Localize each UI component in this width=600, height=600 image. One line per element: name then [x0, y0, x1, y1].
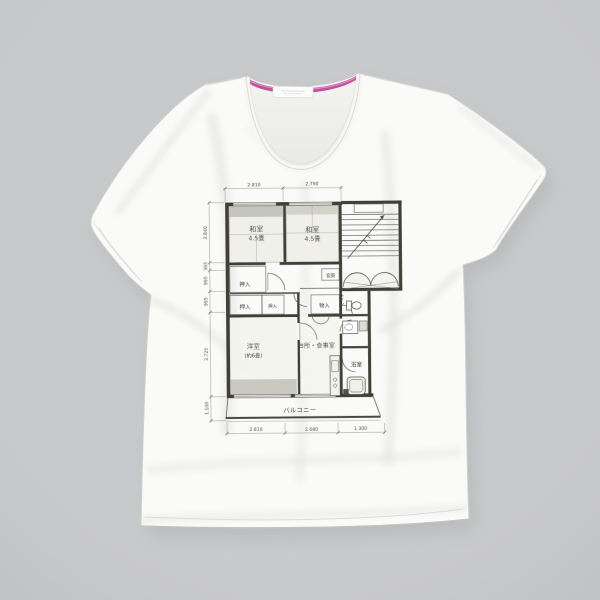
label-kitchen-dining: 台所・食事室 [298, 342, 335, 350]
label-waroom-left-size: 4.5畳 [248, 235, 264, 242]
dim-left-3: 995 [203, 297, 209, 306]
dim-left-1: 365 [203, 262, 209, 271]
label-closet-lower-left: 押入 [239, 303, 251, 311]
tshirt-product-photo: 和室 4.5畳 和室 4.5畳 押入 押入 押入 物入 玄関 トイレ 洋室 (約… [0, 0, 600, 600]
dim-left-4: 3.725 [204, 348, 210, 361]
dim-top-0: 2.810 [247, 182, 260, 188]
dim-bottom-2: 1.300 [354, 426, 367, 432]
label-toilet: トイレ [340, 294, 346, 305]
label-western-room-name: 洋室 [247, 341, 261, 350]
label-storage: 物入 [319, 301, 329, 309]
dim-top-1: 2.790 [305, 181, 318, 187]
dim-bottom-1: 2.680 [305, 427, 318, 433]
washing-machine-icon [359, 321, 367, 331]
label-waroom-right-name: 和室 [305, 225, 319, 234]
dim-left-2: 995 [203, 276, 209, 285]
label-balcony: バルコニー [283, 407, 316, 414]
label-western-room-size: (約6畳) [245, 351, 263, 359]
brand-label [273, 86, 313, 98]
dim-left-5: 1.100 [204, 402, 210, 415]
label-waroom-left-name: 和室 [249, 224, 263, 233]
label-closet-upper: 押入 [239, 280, 251, 288]
label-waroom-right-size: 4.5畳 [304, 236, 320, 243]
kitchen-counter [330, 356, 340, 396]
dim-bottom-0: 2.810 [249, 427, 262, 433]
toilet-icon [346, 301, 361, 310]
label-bathroom: 浴室 [351, 360, 363, 368]
dim-left-0: 2.840 [203, 226, 209, 239]
